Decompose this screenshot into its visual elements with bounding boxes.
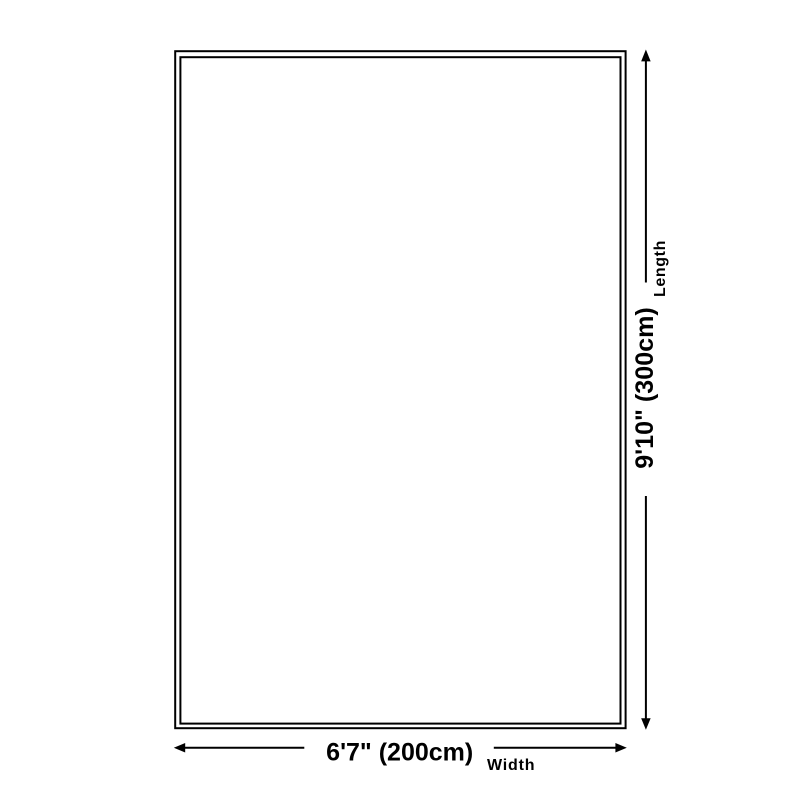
svg-text:6'7" (200cm): 6'7" (200cm) xyxy=(326,739,473,767)
svg-text:Width: Width xyxy=(487,757,535,774)
svg-text:Length: Length xyxy=(652,240,669,297)
svg-text:9'10" (300cm): 9'10" (300cm) xyxy=(631,307,659,469)
